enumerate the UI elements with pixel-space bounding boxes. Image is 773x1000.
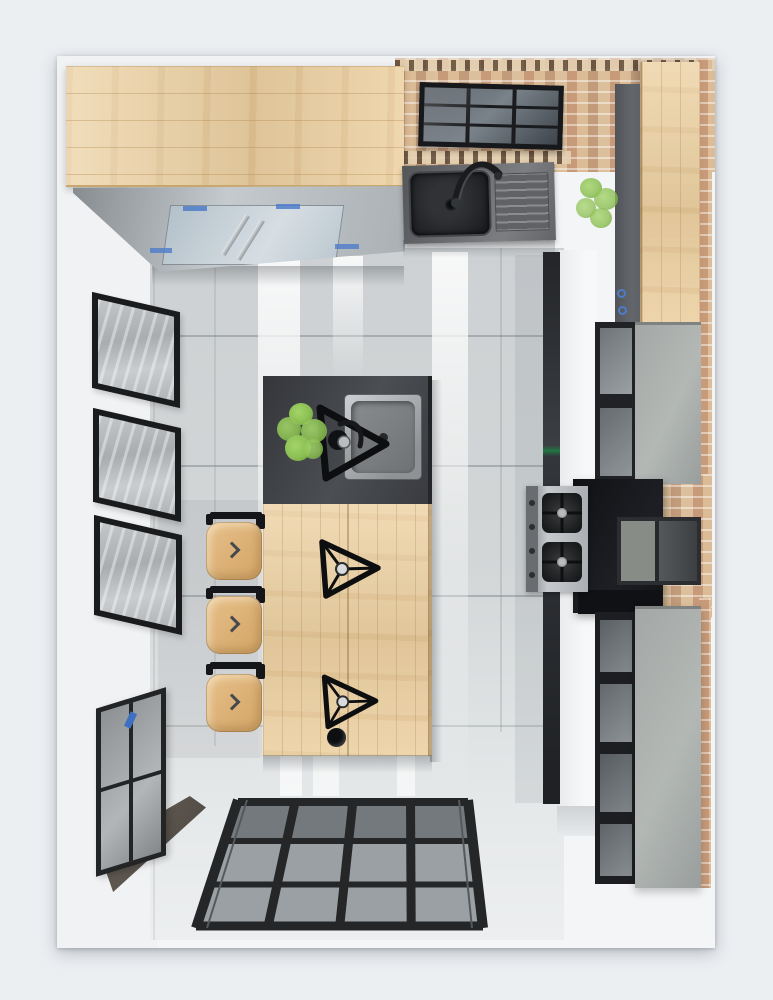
matte-right xyxy=(715,0,773,1000)
cabinet-handle-accent xyxy=(183,206,207,211)
cabinet-glass xyxy=(600,754,632,812)
handle-ring xyxy=(618,306,627,315)
matte-top xyxy=(0,0,773,56)
render-canvas xyxy=(0,0,773,1000)
bar-stool-3 xyxy=(204,662,266,746)
plant-leaf xyxy=(590,208,612,228)
bar-stool-1 xyxy=(204,512,266,592)
wall-art-frame-1 xyxy=(92,292,180,408)
burner-cap xyxy=(557,557,567,567)
pendant-lamp-1 xyxy=(314,530,388,604)
cabinet-handle-accent xyxy=(276,204,300,209)
cabinet-glass xyxy=(600,824,632,876)
cooktop-knob xyxy=(529,572,535,578)
matte-bottom xyxy=(0,948,773,1000)
wall-art-frame-2 xyxy=(93,408,181,522)
stool-seat xyxy=(206,596,262,654)
burner-cap xyxy=(557,508,567,518)
wall-faucet xyxy=(447,146,509,210)
tall-cabinet-upper-doors xyxy=(595,322,637,484)
cabinet-glass xyxy=(600,328,632,394)
wall-art-frame-3 xyxy=(94,515,182,635)
glazed-partition-doors xyxy=(190,796,488,932)
cooktop-knob xyxy=(529,524,535,530)
kitchen-scene xyxy=(0,0,773,1000)
cooktop-control-strip xyxy=(526,486,538,592)
cabinet-handle-accent xyxy=(150,248,172,253)
tall-display-cabinet-lower xyxy=(635,606,701,888)
stool-chevron xyxy=(224,616,241,633)
bar-stool-2 xyxy=(204,586,266,666)
island-bottom-shadow xyxy=(263,755,432,773)
stool-frame xyxy=(210,586,262,593)
tall-cabinet-lower-doors xyxy=(595,612,637,884)
pendant-bulb xyxy=(327,728,346,747)
chimney-opening xyxy=(655,521,697,581)
plant-leaf xyxy=(303,439,323,459)
stool-frame xyxy=(206,664,213,675)
stool-frame xyxy=(210,662,262,669)
cabinet-glass xyxy=(600,620,632,672)
pendant-lamp-2 xyxy=(317,666,385,734)
skylight-window xyxy=(418,82,564,150)
wall-plant xyxy=(574,174,624,232)
burner-grate xyxy=(542,493,582,533)
tall-display-cabinet-upper xyxy=(635,322,701,484)
stool-seat xyxy=(206,522,262,580)
hood-chimney-box xyxy=(617,517,701,585)
cooktop-knob xyxy=(529,548,535,554)
island-plant xyxy=(277,403,327,465)
stool-seat xyxy=(206,674,262,732)
counter-end-face xyxy=(557,806,599,836)
matte-left xyxy=(0,0,57,1000)
cooktop-knob xyxy=(529,500,535,506)
cabinet-glass xyxy=(600,684,632,742)
cabinet-glass xyxy=(600,408,632,476)
window-reflection xyxy=(423,87,558,144)
floor-seam xyxy=(500,248,502,732)
burner-grate xyxy=(542,542,582,582)
stool-frame xyxy=(210,512,262,519)
right-wood-counter xyxy=(640,62,700,332)
gas-cooktop xyxy=(526,486,588,592)
stool-chevron xyxy=(224,542,241,559)
handle-ring xyxy=(617,289,626,298)
cabinet-handle-accent xyxy=(335,244,359,249)
top-wood-countertop xyxy=(66,66,404,187)
stool-chevron xyxy=(224,694,241,711)
plant-leaf xyxy=(594,188,618,210)
